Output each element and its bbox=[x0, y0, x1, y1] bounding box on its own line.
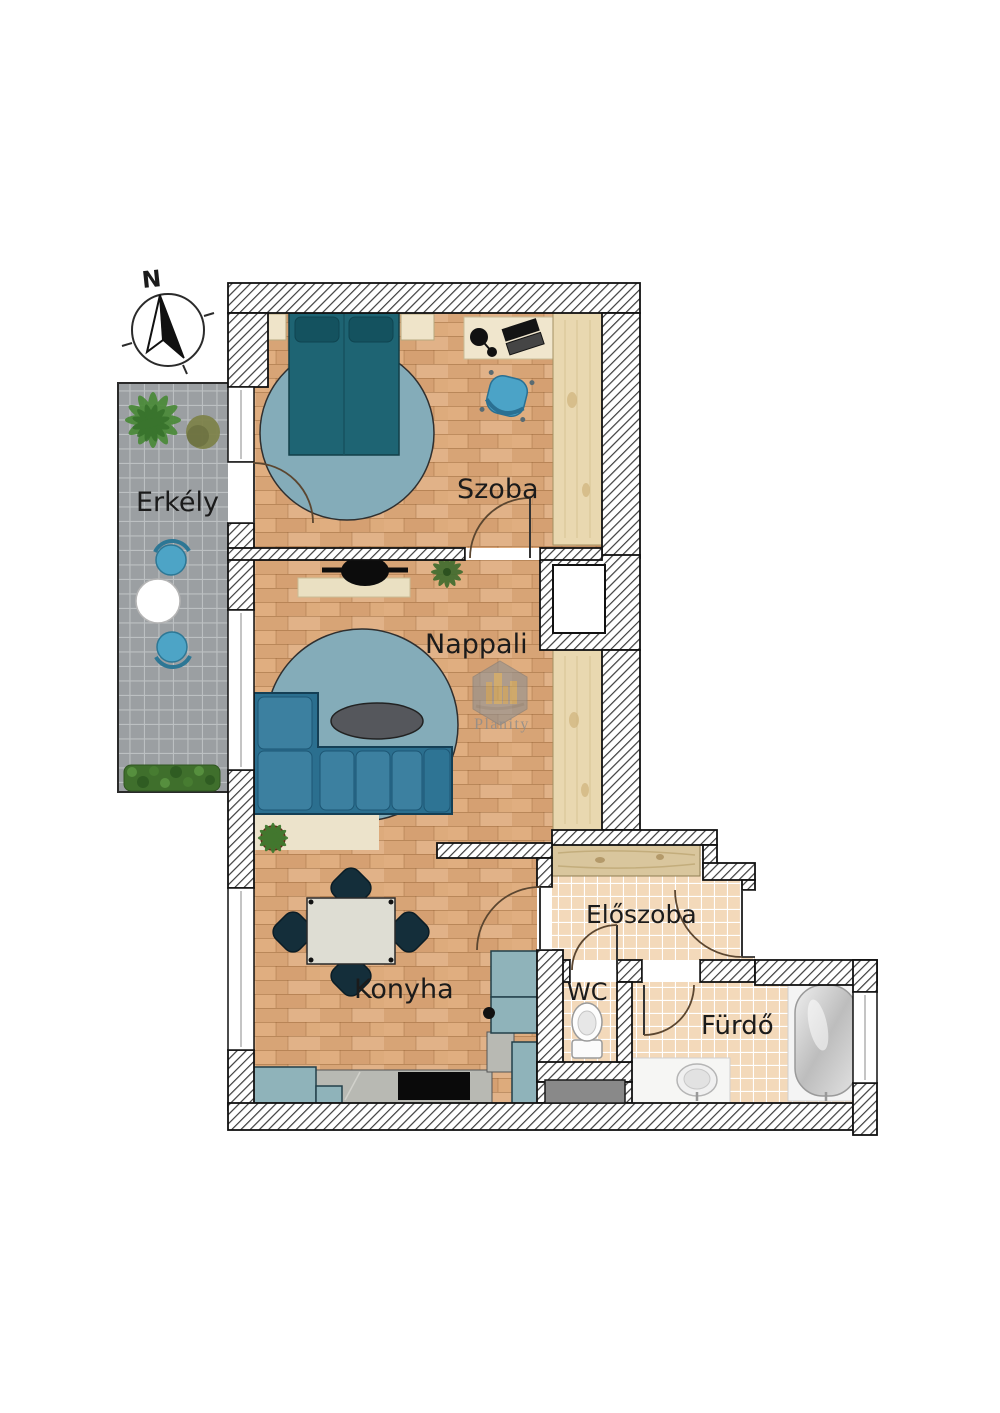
wall bbox=[853, 960, 877, 992]
coffee-table bbox=[331, 703, 423, 739]
north-arrow bbox=[160, 295, 184, 358]
wall bbox=[537, 858, 552, 887]
kitchen-window bbox=[228, 888, 254, 1050]
living-wardrobe bbox=[553, 650, 602, 830]
floor-plan-drawing bbox=[0, 0, 1000, 1413]
balcony bbox=[118, 383, 230, 792]
kitchen-cabinet bbox=[491, 997, 538, 1033]
room-label-konyha: Konyha bbox=[354, 976, 454, 1003]
wall bbox=[552, 830, 717, 845]
bathroom-window bbox=[853, 992, 877, 1083]
utility-shaft bbox=[553, 565, 605, 633]
wall bbox=[437, 843, 552, 858]
floor-plan-canvas: N Erkély Szoba Nappali Konyha Előszoba W… bbox=[0, 0, 1000, 1413]
wall bbox=[853, 1083, 877, 1135]
compass-north-label: N bbox=[141, 268, 163, 293]
kitchen-cabinet bbox=[252, 1067, 316, 1103]
compass-icon bbox=[122, 294, 214, 374]
kitchen-sink-faucet bbox=[483, 1007, 495, 1019]
wall bbox=[602, 313, 640, 558]
room-label-szoba: Szoba bbox=[457, 476, 539, 503]
double-bed bbox=[289, 313, 399, 455]
wall bbox=[228, 313, 268, 387]
wall bbox=[228, 1103, 853, 1130]
room-label-wc: WC bbox=[567, 980, 608, 1004]
wall bbox=[228, 770, 254, 888]
toilet bbox=[572, 1003, 602, 1058]
kitchen-cabinet bbox=[316, 1086, 342, 1103]
balcony-plant-olive bbox=[186, 415, 220, 449]
bedroom-wardrobe bbox=[553, 313, 602, 545]
wall bbox=[228, 283, 640, 313]
wall bbox=[617, 960, 642, 982]
wall bbox=[703, 863, 755, 880]
room-label-eloszoba: Előszoba bbox=[586, 902, 697, 927]
nightstand bbox=[401, 314, 434, 340]
wall bbox=[537, 1062, 632, 1082]
dining-table bbox=[307, 898, 395, 964]
sink-counter bbox=[630, 1058, 730, 1103]
balcony-hedge bbox=[124, 765, 220, 791]
room-label-erkely: Erkély bbox=[136, 489, 219, 516]
living-room-window bbox=[228, 610, 254, 770]
wall bbox=[228, 523, 254, 610]
wall bbox=[617, 982, 632, 1062]
watermark-brand: Planity bbox=[462, 716, 542, 734]
fridge bbox=[512, 1042, 539, 1104]
wall bbox=[700, 960, 755, 982]
wall bbox=[228, 1050, 254, 1110]
bedroom-window bbox=[228, 387, 254, 462]
room-label-nappali: Nappali bbox=[425, 631, 528, 658]
wall bbox=[742, 880, 755, 890]
room-label-furdo: Fürdő bbox=[701, 1013, 774, 1039]
wall bbox=[228, 548, 465, 560]
balcony-table bbox=[136, 579, 180, 623]
stove bbox=[398, 1072, 470, 1100]
washing-machine bbox=[545, 1080, 625, 1103]
wall bbox=[540, 548, 602, 560]
kitchen-cabinet bbox=[491, 951, 538, 997]
hallway-cabinet bbox=[552, 845, 700, 876]
wall bbox=[602, 650, 640, 830]
